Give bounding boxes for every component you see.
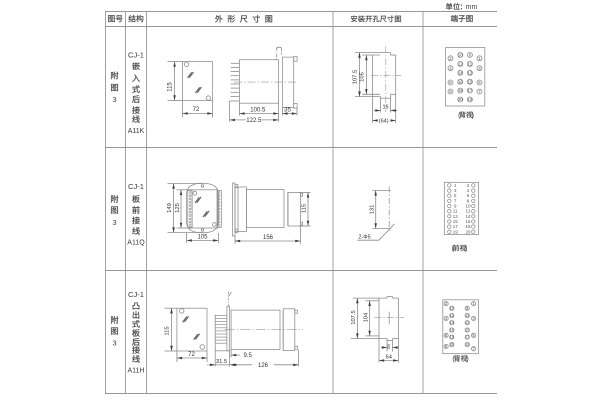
svg-text:100.5: 100.5: [250, 107, 266, 113]
svg-text:105: 105: [360, 72, 366, 82]
svg-text:115: 115: [302, 204, 308, 213]
svg-text:10: 10: [449, 306, 454, 311]
svg-text:14: 14: [458, 70, 463, 75]
svg-text:CJ-1: CJ-1: [128, 182, 144, 191]
svg-text:107.5: 107.5: [352, 70, 358, 85]
svg-text:126: 126: [258, 363, 269, 369]
svg-text:18: 18: [458, 88, 463, 93]
svg-text:(: (: [452, 246, 455, 253]
svg-text:): ): [472, 112, 474, 119]
svg-text:A11H: A11H: [128, 368, 145, 375]
svg-text:16: 16: [382, 104, 388, 110]
svg-text:122.5: 122.5: [246, 118, 262, 124]
svg-text:12: 12: [458, 62, 463, 67]
svg-text:20: 20: [458, 97, 463, 102]
svg-text:10: 10: [458, 53, 463, 58]
svg-text:11: 11: [468, 62, 473, 67]
svg-text:11: 11: [465, 313, 470, 318]
svg-text:72: 72: [193, 107, 200, 113]
svg-text:72: 72: [188, 352, 195, 358]
svg-text:19: 19: [468, 97, 473, 102]
svg-text:115: 115: [167, 82, 173, 92]
svg-text:20: 20: [466, 229, 471, 234]
svg-text:(64): (64): [379, 119, 389, 125]
svg-text:20: 20: [449, 342, 454, 347]
svg-text:mm: mm: [466, 4, 478, 11]
svg-text:CJ-1: CJ-1: [128, 290, 144, 299]
svg-text:3: 3: [112, 95, 116, 104]
svg-text:15: 15: [465, 328, 470, 333]
svg-text:125: 125: [175, 203, 181, 213]
svg-text:13: 13: [468, 70, 473, 75]
svg-text:18: 18: [449, 335, 454, 340]
svg-text:14: 14: [449, 320, 454, 325]
svg-text:9.5: 9.5: [244, 353, 253, 359]
svg-text:31.5: 31.5: [216, 359, 227, 365]
svg-text:17: 17: [465, 335, 470, 340]
svg-text:35: 35: [284, 107, 291, 113]
svg-text:64: 64: [385, 355, 392, 361]
svg-text:107.5: 107.5: [351, 310, 357, 325]
svg-text:115: 115: [165, 326, 171, 335]
svg-text:A11Q: A11Q: [127, 240, 145, 247]
svg-text:105: 105: [197, 234, 208, 240]
svg-text:19: 19: [465, 342, 470, 347]
svg-text:13: 13: [465, 320, 470, 325]
svg-text:156: 156: [263, 235, 274, 241]
svg-text:2-Φ5: 2-Φ5: [358, 234, 370, 240]
svg-text:15: 15: [468, 79, 473, 84]
svg-text:149: 149: [167, 203, 173, 213]
svg-text:CJ-1: CJ-1: [128, 51, 144, 60]
svg-text:16: 16: [449, 328, 454, 333]
svg-text:131: 131: [370, 205, 376, 215]
svg-text:16: 16: [386, 344, 392, 350]
svg-text:): ): [465, 246, 467, 253]
svg-text:3: 3: [112, 339, 116, 348]
svg-text:17: 17: [468, 88, 473, 93]
svg-text:A11K: A11K: [128, 128, 145, 135]
svg-text:12: 12: [449, 313, 454, 318]
svg-text:3: 3: [112, 218, 116, 227]
svg-text:): ): [466, 356, 468, 363]
svg-text:19: 19: [453, 229, 458, 234]
svg-text:104: 104: [363, 312, 369, 322]
svg-text:16: 16: [458, 79, 463, 84]
